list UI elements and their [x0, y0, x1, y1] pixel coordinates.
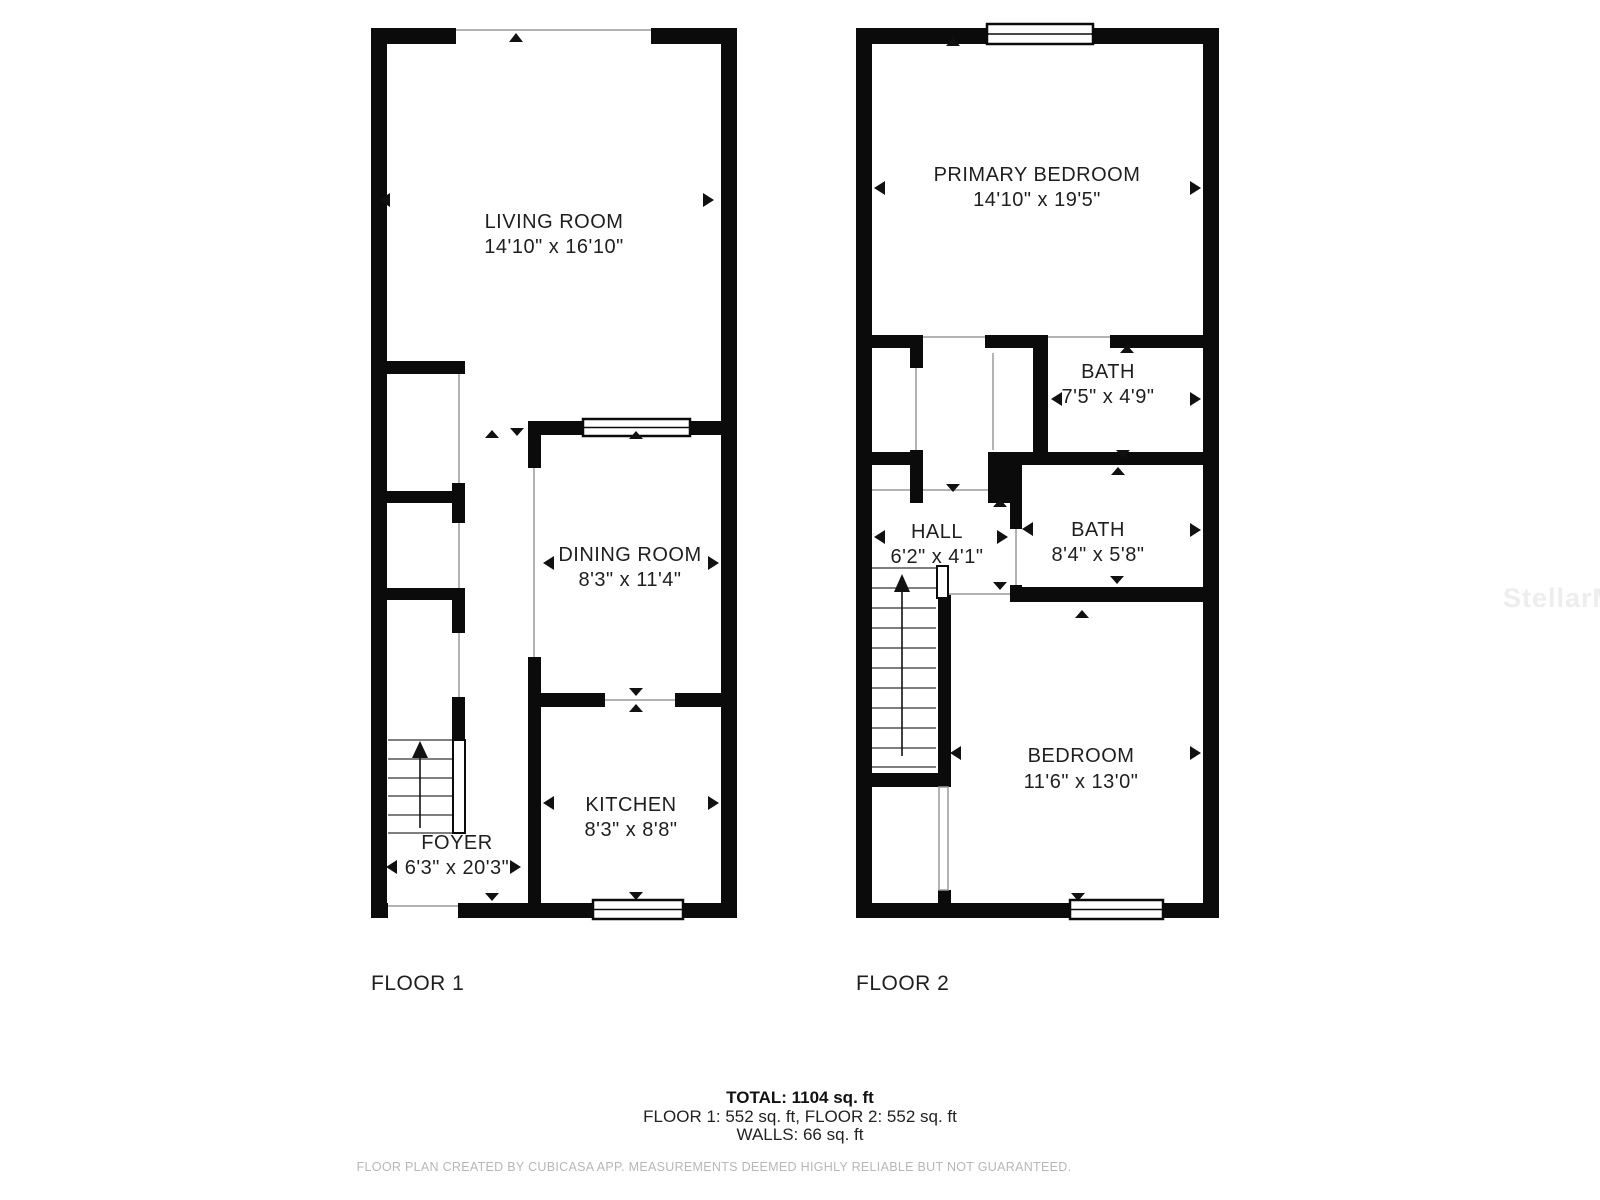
total-area-text: TOTAL: 1104 sq. ft: [726, 1088, 874, 1107]
bath2-dims: 8'4" x 5'8": [1052, 544, 1145, 566]
bath1-label: BATH: [1081, 361, 1135, 383]
floor-plan-page: LIVING ROOM 14'10" x 16'10" DINING ROOM …: [0, 0, 1600, 1200]
dining-room-label: DINING ROOM: [558, 544, 701, 566]
walls-area-text: WALLS: 66 sq. ft: [737, 1125, 864, 1144]
living-room-dims: 14'10" x 16'10": [484, 236, 623, 258]
disclaimer-text: FLOOR PLAN CREATED BY CUBICASA APP. MEAS…: [357, 1160, 1072, 1174]
floor1-stairs: [388, 740, 465, 833]
bath2-label: BATH: [1071, 519, 1125, 541]
foyer-label: FOYER: [421, 832, 492, 854]
floor1-label: FLOOR 1: [371, 972, 464, 995]
floor2-stairs: [872, 566, 948, 767]
foyer-dims: 6'3" x 20'3": [405, 857, 510, 879]
bath1-dims: 7'5" x 4'9": [1062, 386, 1155, 408]
floor2-label: FLOOR 2: [856, 972, 949, 995]
floor2-bottom-window: [1070, 900, 1163, 919]
stellar-mls-watermark: StellarMLS: [1503, 583, 1600, 613]
bedroom-dims: 11'6" x 13'0": [1024, 771, 1139, 793]
floor-plan-svg: LIVING ROOM 14'10" x 16'10" DINING ROOM …: [0, 0, 1600, 1200]
floor2-low-wall: [939, 787, 948, 890]
bedroom-label: BEDROOM: [1028, 745, 1135, 767]
living-room-label: LIVING ROOM: [485, 211, 624, 233]
hall-label: HALL: [911, 521, 963, 543]
primary-bedroom-dims: 14'10" x 19'5": [973, 189, 1101, 211]
floor1-measure-markers: [379, 33, 719, 901]
hall-dims: 6'2" x 4'1": [891, 546, 984, 568]
dining-room-dims: 8'3" x 11'4": [578, 569, 681, 591]
floor-areas-text: FLOOR 1: 552 sq. ft, FLOOR 2: 552 sq. ft: [643, 1107, 957, 1126]
floor1-walls: [371, 28, 737, 918]
primary-bedroom-label: PRIMARY BEDROOM: [934, 164, 1141, 186]
floor1-kitchen-window: [593, 900, 683, 919]
summary-block: TOTAL: 1104 sq. ft FLOOR 1: 552 sq. ft, …: [643, 1088, 957, 1144]
kitchen-dims: 8'3" x 8'8": [585, 819, 678, 841]
floor2-plan: PRIMARY BEDROOM 14'10" x 19'5" BATH 7'5"…: [856, 24, 1219, 995]
kitchen-label: KITCHEN: [585, 794, 676, 816]
floor1-plan: LIVING ROOM 14'10" x 16'10" DINING ROOM …: [371, 28, 737, 995]
floor2-top-window: [987, 24, 1093, 44]
